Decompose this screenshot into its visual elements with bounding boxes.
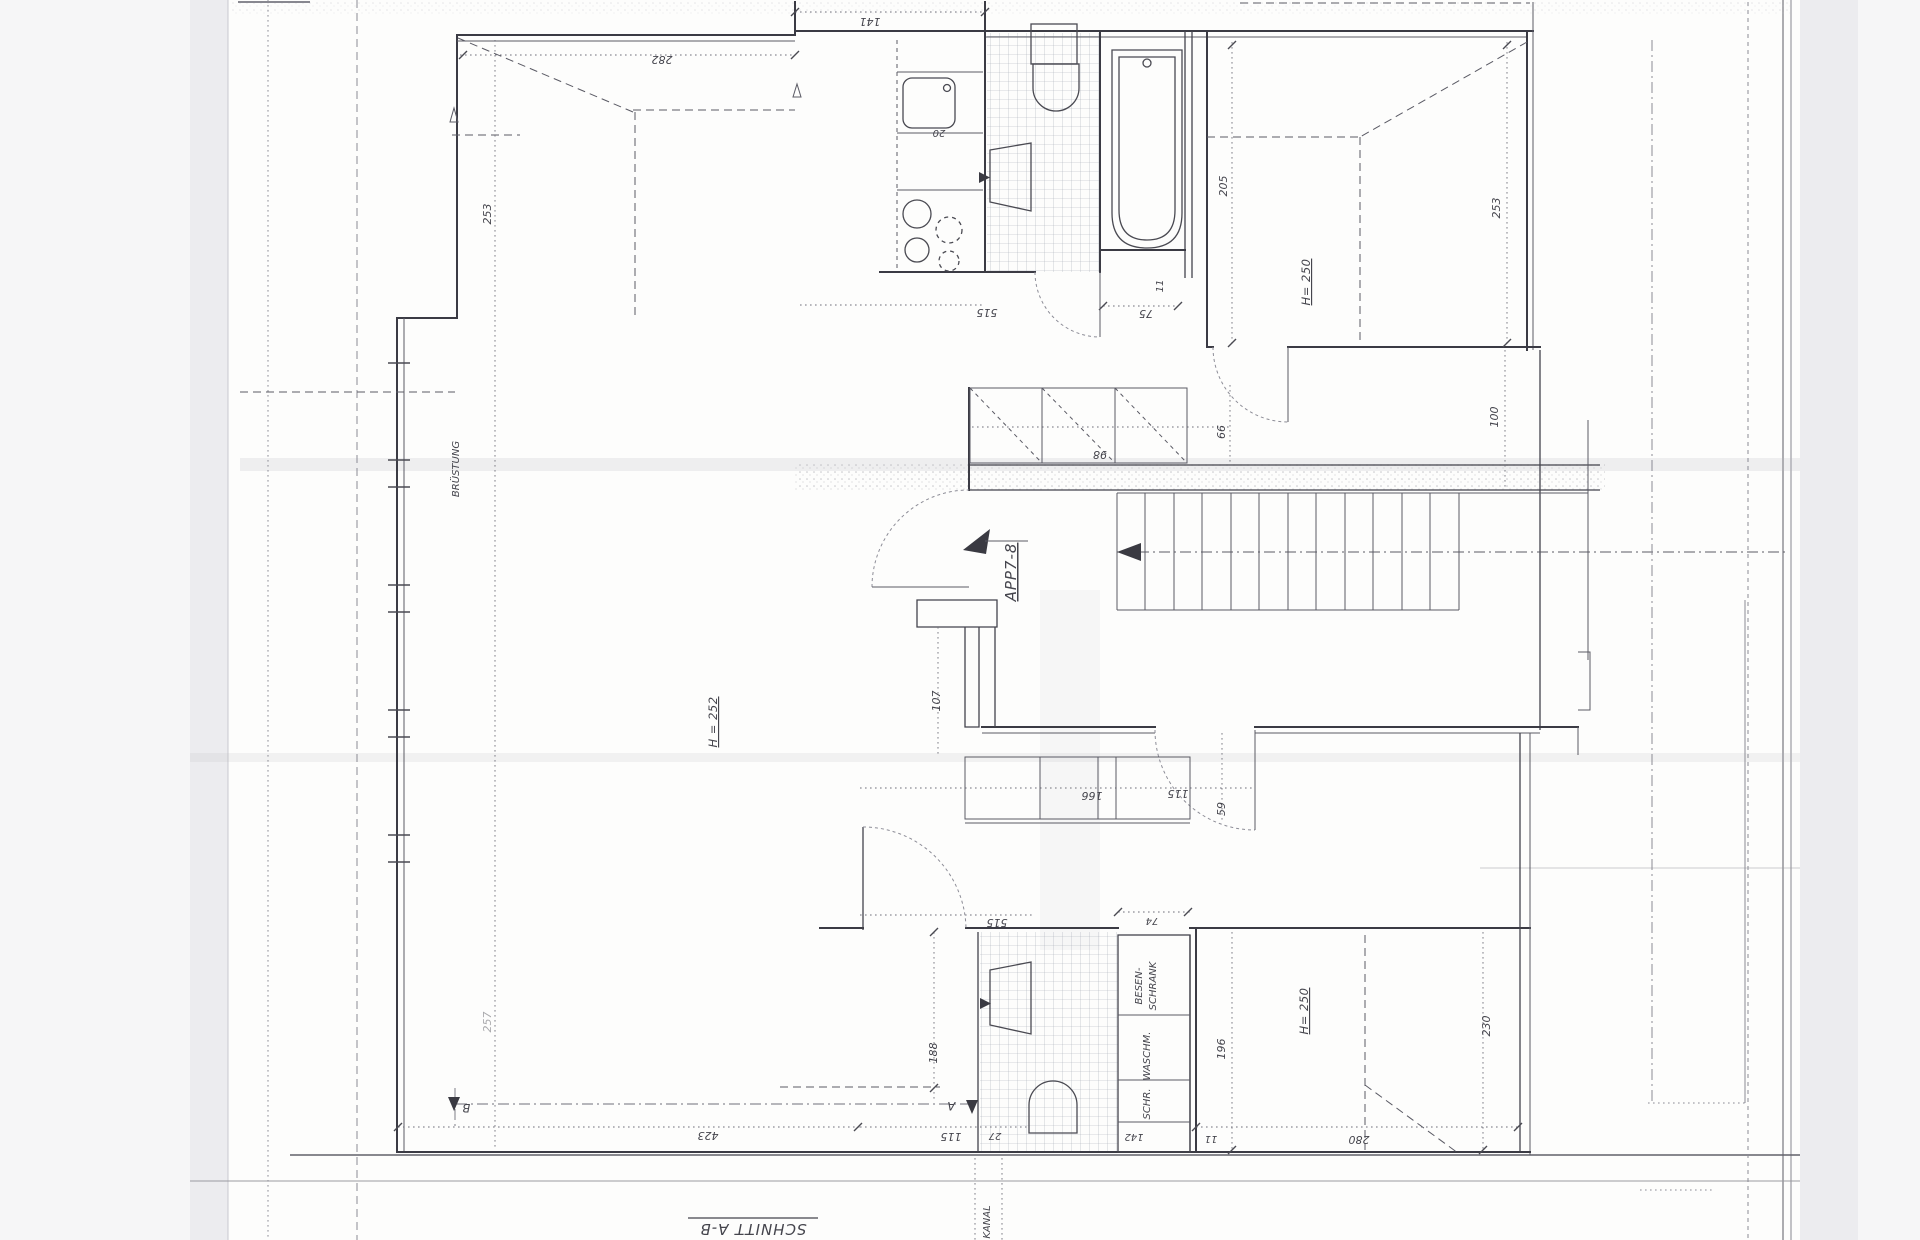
dim-label: 100: [1488, 407, 1501, 428]
shaft-label: KANAL: [982, 1205, 993, 1238]
bedroom-bottom-right-wall: [1190, 733, 1520, 1152]
section-line: [455, 1088, 970, 1130]
dim-label: 253: [481, 204, 494, 225]
dim-label: 11: [1205, 1133, 1218, 1144]
bathroom-top-tiles: [987, 33, 1100, 272]
tub-room-right-wall: [1185, 31, 1192, 278]
bath-top-door-arc: [1035, 272, 1100, 337]
stair-direction-arrow-icon: [1117, 543, 1141, 561]
bedroom-top-door-arc: [1213, 347, 1288, 422]
living-room-inner-lines: [404, 41, 795, 1152]
scanned-floor-plan-page: 141 282 253 20 205 253 H= 250 75 11 515 …: [0, 0, 1920, 1240]
stove-burner: [903, 200, 931, 228]
kitchen-faucet-icon: [944, 85, 951, 92]
wardrobe-cabinet: [970, 388, 1187, 463]
dim-label: 75: [1139, 307, 1153, 320]
dim-label: 257: [481, 1012, 494, 1033]
room-height-label: H= 250: [1297, 988, 1311, 1035]
scan-artifacts: [0, 0, 1920, 1240]
dim-label: 11: [1155, 280, 1166, 293]
dim-label: 515: [987, 916, 1008, 929]
bathtub: [1112, 50, 1182, 248]
living-room-outline: [397, 2, 795, 1152]
section-marker-a-icon: [966, 1100, 978, 1114]
dim-label: 141: [860, 15, 881, 28]
dimension-ticks: [394, 8, 1522, 1154]
kitchen-fixtures: [793, 40, 983, 271]
parapet-label: BRÜSTUNG: [449, 441, 462, 497]
dim-label: 230: [1480, 1016, 1493, 1037]
stove-burner: [905, 238, 929, 262]
dim-label: 115: [1168, 787, 1189, 800]
bathtub-inner: [1119, 57, 1175, 240]
closet-dividers: [1118, 1015, 1190, 1122]
dim-label: 282: [652, 53, 673, 66]
dim-label: 515: [977, 306, 998, 319]
bathroom-bottom-tiles: [980, 932, 1118, 1152]
dim-label: 142: [1124, 1131, 1143, 1142]
window-ticks: [388, 363, 410, 862]
markers: [448, 108, 1028, 1218]
dim-label: 107: [930, 691, 943, 712]
dim-label: 188: [927, 1043, 940, 1064]
dim-label: 115: [941, 1130, 962, 1143]
dim-label: 27: [988, 1130, 1001, 1141]
tub-drain-icon: [1143, 59, 1151, 67]
room-label: WASCHM.: [1142, 1032, 1153, 1081]
stove-burner: [936, 217, 962, 243]
floor-plan-drawing: 141 282 253 20 205 253 H= 250 75 11 515 …: [0, 0, 1920, 1240]
room-label: BESEN-: [1134, 967, 1145, 1004]
dim-label: 20: [933, 127, 946, 138]
dimension-lines: [398, 12, 1520, 1240]
dim-label: 166: [1082, 789, 1103, 802]
dim-label: 66: [1215, 425, 1228, 439]
section-marker-a-label: A: [947, 1099, 956, 1113]
structural-wall-band: [795, 463, 1605, 491]
kitchen-sink: [903, 78, 955, 128]
dim-label: 196: [1215, 1039, 1228, 1060]
dim-label: 74: [1146, 915, 1159, 926]
roof-slope-lines: [240, 3, 1530, 1153]
apartment-label: APP7-8: [1002, 543, 1020, 603]
room-height-label: H = 252: [706, 696, 720, 747]
dim-label: 98: [1093, 448, 1107, 461]
section-title: SCHNITT A-B: [700, 1220, 807, 1238]
stove-burner: [939, 251, 959, 271]
dim-label: 280: [1349, 1133, 1370, 1146]
room-height-label: H= 250: [1299, 259, 1313, 306]
room-label: SCHRANK: [1148, 960, 1159, 1010]
vestibule-duct-walls: [917, 600, 997, 727]
section-marker-b-label: B: [462, 1101, 470, 1115]
dim-label: 205: [1217, 176, 1230, 197]
dim-label: 423: [698, 1129, 719, 1142]
room-label: SCHR.: [1142, 1089, 1153, 1120]
entry-door-arc: [872, 490, 969, 587]
small-arrow-icon: [793, 84, 801, 97]
dim-label: 59: [1215, 802, 1228, 816]
bedroom-bottom-door-arc: [1155, 730, 1255, 830]
dim-label: 253: [1490, 198, 1503, 219]
